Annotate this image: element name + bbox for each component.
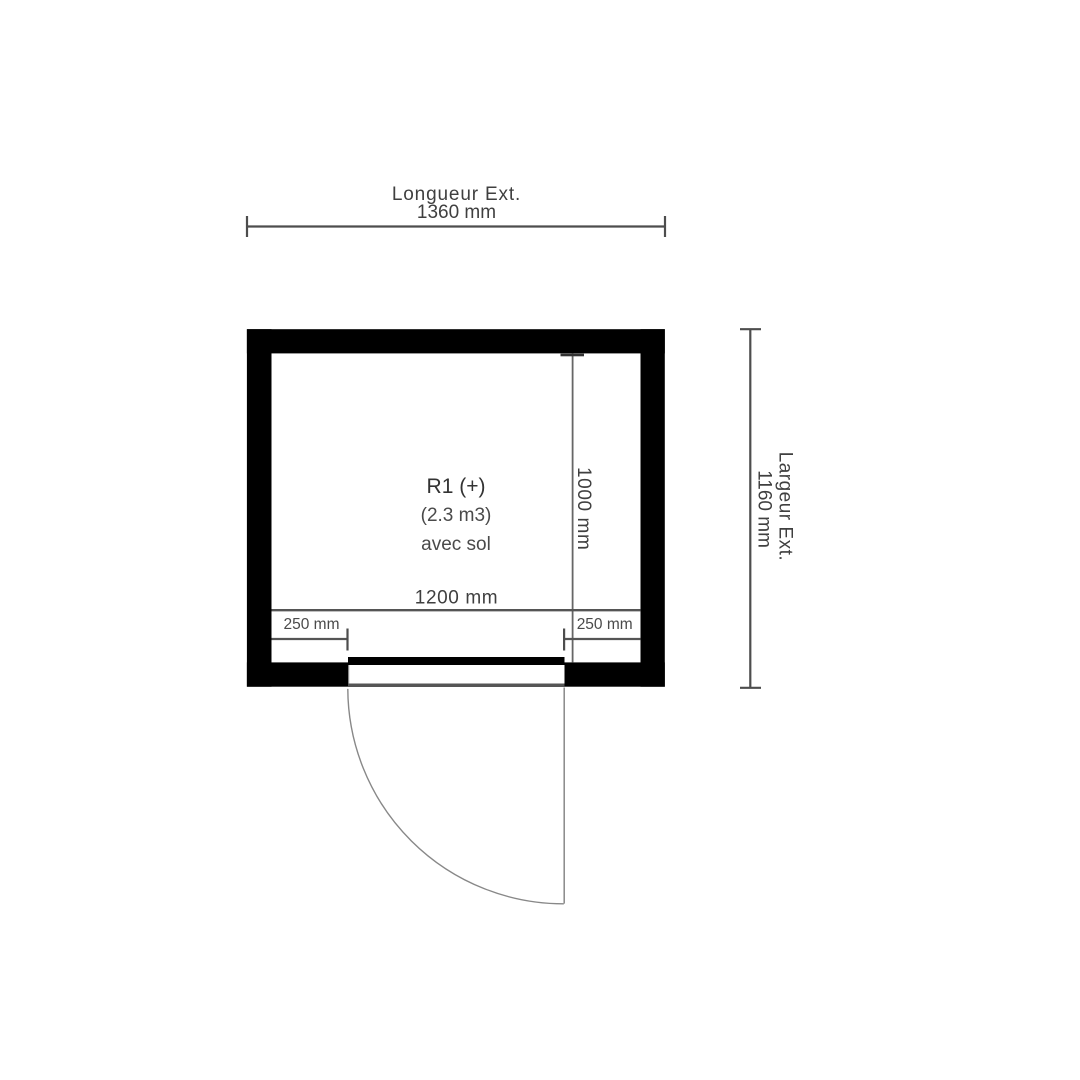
svg-text:1000 mm: 1000 mm [573, 467, 594, 550]
svg-text:(2.3 m3): (2.3 m3) [421, 505, 492, 526]
svg-text:R1 (+): R1 (+) [427, 475, 486, 498]
svg-text:1360 mm: 1360 mm [417, 202, 496, 223]
svg-text:250 mm: 250 mm [577, 616, 633, 633]
svg-text:avec sol: avec sol [421, 534, 491, 555]
svg-text:Largeur Ext.: Largeur Ext. [774, 452, 795, 562]
svg-text:250 mm: 250 mm [284, 616, 340, 633]
svg-text:1200 mm: 1200 mm [415, 587, 498, 608]
svg-text:1160 mm: 1160 mm [753, 470, 774, 548]
